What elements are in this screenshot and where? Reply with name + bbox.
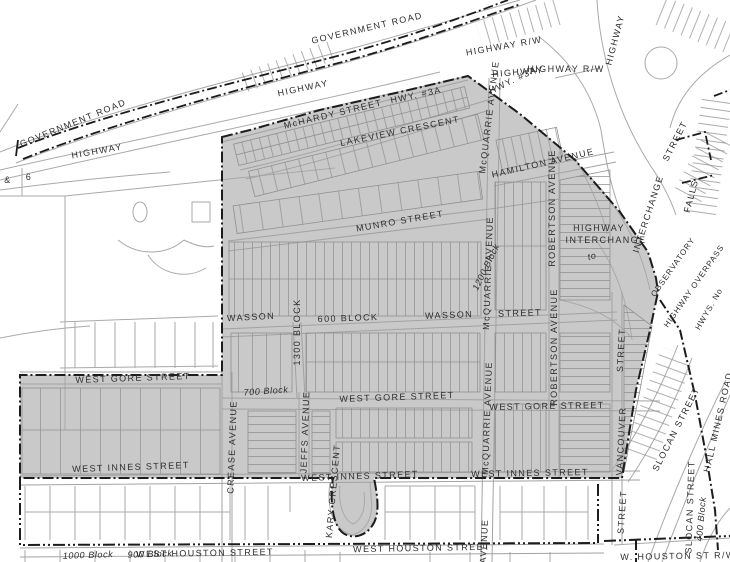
robertson-avenue-label-north: ROBERTSON AVENUE (547, 149, 557, 267)
wasson-street-suffix-label: STREET (498, 307, 542, 319)
robertson-avenue-label-south: ROBERTSON AVENUE (549, 288, 559, 406)
zoning-map-canvas: GOVERNMENT ROAD GOVERNMENT ROAD HIGHWAY … (0, 0, 730, 562)
block-1300-label: 1300 BLOCK (292, 298, 302, 365)
ampersand-label: & (4, 175, 11, 185)
west-gore-street-label-east: WEST GORE STREET (489, 400, 604, 412)
six-label: 6 (26, 172, 32, 182)
block-1000-label: 1000 Block (63, 549, 114, 561)
west-innes-street-label-east: WEST INNES STREET (471, 467, 589, 479)
highway-interchange-label-line1: HIGHWAY (573, 223, 625, 233)
w-houston-st-rw-label: W. HOUSTON ST R/W (620, 550, 730, 562)
block-600-label: 600 BLOCK (318, 312, 379, 324)
wasson-street-label-east: WASSON (425, 309, 473, 321)
